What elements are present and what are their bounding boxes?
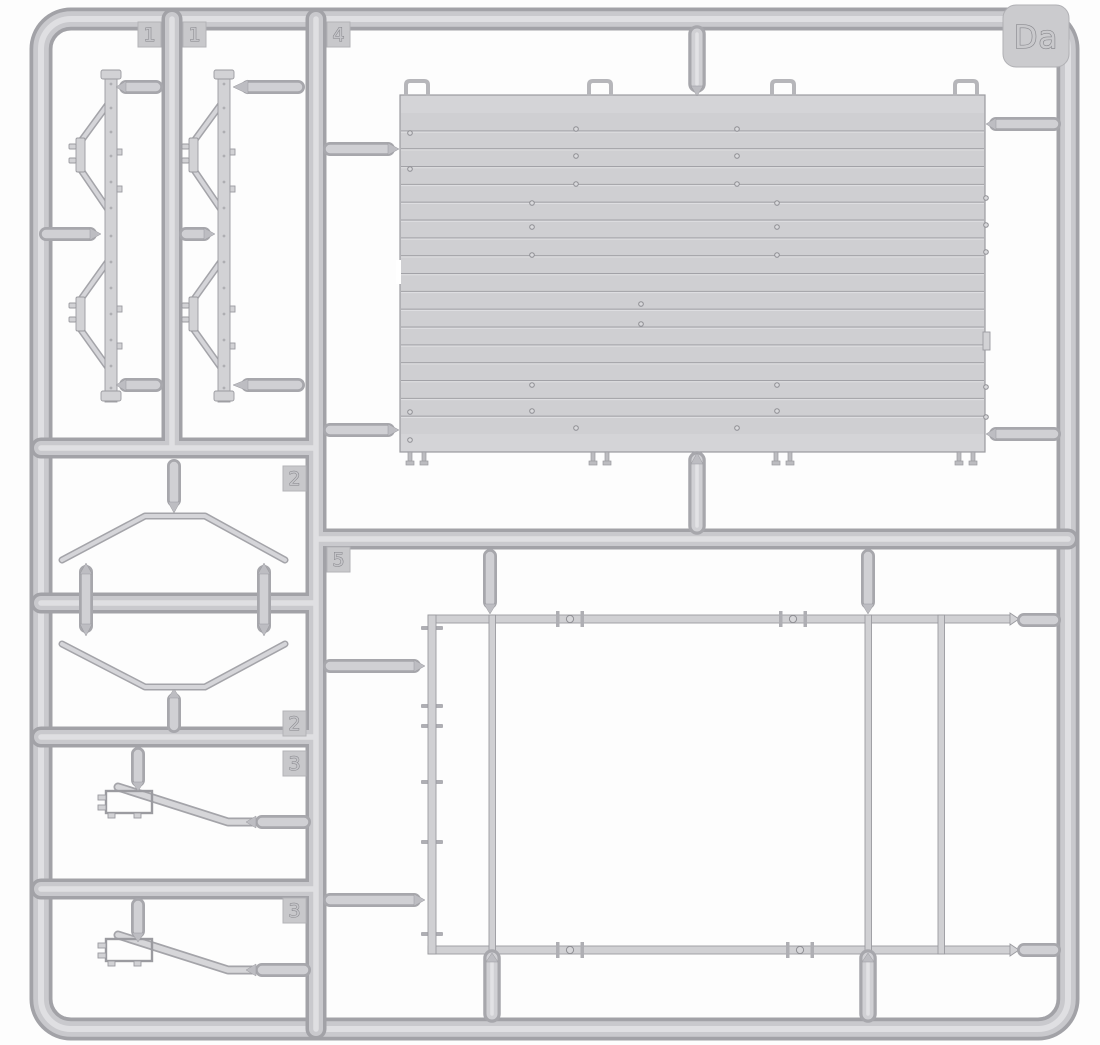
badge-label: 2 — [288, 713, 300, 735]
part-number-badge-3a: 3 — [283, 751, 306, 776]
part-5-frame — [428, 613, 1019, 956]
badge-label: 2 — [288, 468, 300, 490]
sprue-id-badge: Da — [1003, 5, 1069, 67]
sprue-photo: 1 1 4 2 2 3 3 5 Da — [0, 0, 1100, 1045]
part-number-badge-3b: 3 — [283, 898, 306, 923]
panel-left-notch — [396, 260, 401, 284]
frame-rail-clamps — [556, 611, 814, 958]
part-2-bow-upper — [62, 516, 285, 560]
part-number-badge-1b: 1 — [183, 22, 206, 47]
sprue-id-label: Da — [1014, 20, 1059, 56]
badge-label: 3 — [288, 753, 300, 775]
badge-label: 4 — [332, 24, 344, 46]
part-number-badge-5: 5 — [327, 547, 350, 572]
badge-label: 5 — [332, 549, 344, 571]
part-4-floor-panel — [396, 81, 990, 465]
part-number-badge-2b: 2 — [283, 711, 306, 736]
part-2-bow-lower — [62, 644, 285, 687]
badge-label: 1 — [188, 24, 200, 46]
sprue-illustration: 1 1 4 2 2 3 3 5 Da — [0, 0, 1100, 1045]
badge-label: 3 — [288, 900, 300, 922]
badge-label: 1 — [143, 24, 155, 46]
part-3-lever-upper — [98, 787, 252, 822]
part-number-badge-1a: 1 — [138, 22, 161, 47]
part-number-badge-2a: 2 — [283, 466, 306, 491]
part-number-badge-4: 4 — [327, 22, 350, 47]
panel-right-tab — [983, 332, 990, 350]
part-3-lever-lower — [98, 935, 252, 970]
